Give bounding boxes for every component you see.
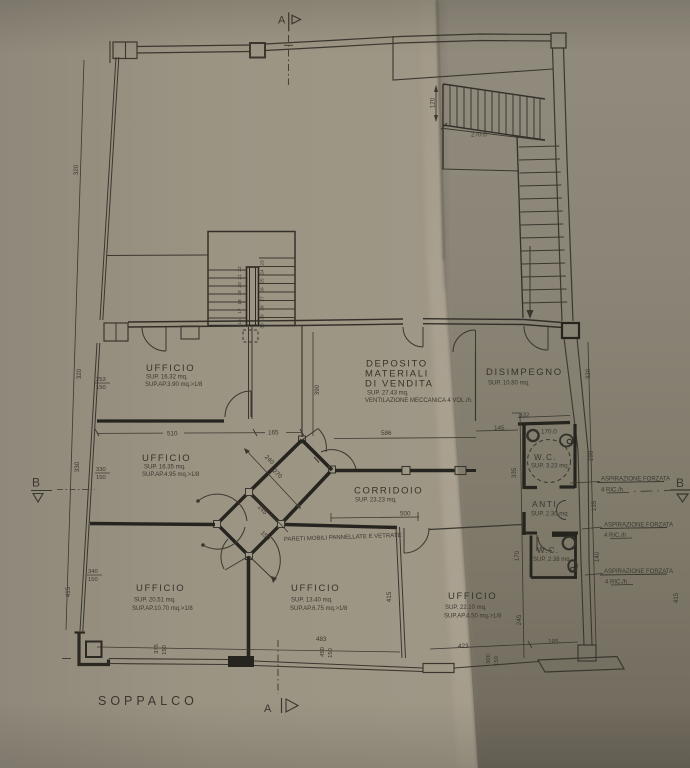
svg-text:120: 120 <box>430 97 437 108</box>
svg-text:270.0: 270.0 <box>471 132 487 139</box>
svg-text:SUP. 3.23 mq.: SUP. 3.23 mq. <box>531 464 570 470</box>
svg-text:145: 145 <box>494 425 505 432</box>
svg-text:320: 320 <box>76 368 83 379</box>
svg-text:SUP. 16.35 mq.: SUP. 16.35 mq. <box>144 465 186 471</box>
svg-text:330: 330 <box>96 467 106 473</box>
svg-text:UFFICIO: UFFICIO <box>142 453 191 464</box>
svg-text:20: 20 <box>237 282 243 288</box>
svg-text:340: 340 <box>88 569 98 575</box>
svg-text:SOPPALCO: SOPPALCO <box>98 694 198 708</box>
svg-text:415: 415 <box>65 586 72 597</box>
svg-text:300: 300 <box>486 654 492 664</box>
svg-text:150: 150 <box>494 656 500 666</box>
svg-text:423: 423 <box>458 643 469 650</box>
svg-text:SUP.AP.10.70 mq.>1/8: SUP.AP.10.70 mq.>1/8 <box>132 606 193 612</box>
svg-text:150: 150 <box>162 645 168 655</box>
svg-text:253: 253 <box>96 377 106 383</box>
svg-text:SUP. 2.38 mq: SUP. 2.38 mq <box>533 557 570 563</box>
svg-text:135: 135 <box>591 500 598 511</box>
svg-text:170.0: 170.0 <box>541 429 557 436</box>
svg-text:150: 150 <box>88 577 98 583</box>
svg-text:A: A <box>264 703 272 715</box>
svg-text:335: 335 <box>511 467 518 478</box>
svg-text:24: 24 <box>260 269 266 275</box>
svg-text:320: 320 <box>585 368 592 379</box>
svg-text:18: 18 <box>237 299 243 305</box>
svg-text:375: 375 <box>154 644 160 654</box>
svg-text:A: A <box>278 15 286 27</box>
svg-text:500: 500 <box>400 511 411 518</box>
svg-text:140: 140 <box>594 551 601 562</box>
svg-text:245: 245 <box>516 614 523 625</box>
svg-text:27: 27 <box>260 296 266 302</box>
svg-text:UFFICIO: UFFICIO <box>136 583 185 594</box>
svg-text:ANTI: ANTI <box>532 499 557 509</box>
svg-text:170: 170 <box>514 550 521 561</box>
svg-text:320: 320 <box>73 164 80 175</box>
svg-text:415: 415 <box>386 591 393 602</box>
svg-text:SUP. 2.30 mq: SUP. 2.30 mq <box>531 512 568 518</box>
svg-text:SUP.AP.3.90 mq.>1/8: SUP.AP.3.90 mq.>1/8 <box>145 382 203 388</box>
svg-text:DI VENDITA: DI VENDITA <box>365 379 434 390</box>
svg-text:22: 22 <box>237 266 243 272</box>
svg-text:B: B <box>32 476 40 490</box>
svg-text:25: 25 <box>260 278 266 284</box>
svg-text:483: 483 <box>316 636 327 643</box>
svg-text:W.C.: W.C. <box>537 546 559 555</box>
svg-text:28: 28 <box>260 305 266 311</box>
svg-text:185: 185 <box>548 639 559 646</box>
svg-text:150: 150 <box>96 385 106 391</box>
svg-text:165: 165 <box>268 430 279 437</box>
svg-text:21: 21 <box>237 274 243 280</box>
svg-text:150: 150 <box>328 648 334 658</box>
svg-text:586: 586 <box>381 430 392 437</box>
svg-text:SUP. 23.23 mq.: SUP. 23.23 mq. <box>355 498 397 504</box>
svg-text:UFFICIO: UFFICIO <box>146 363 195 374</box>
svg-text:330: 330 <box>74 461 81 472</box>
svg-text:UFFICIO: UFFICIO <box>291 583 340 594</box>
svg-text:150: 150 <box>96 475 106 481</box>
svg-text:SUP.AP.6.75 mq.>1/8: SUP.AP.6.75 mq.>1/8 <box>290 606 348 612</box>
svg-text:450: 450 <box>320 647 326 657</box>
svg-text:16: 16 <box>237 319 243 325</box>
svg-text:W.C.: W.C. <box>534 453 557 462</box>
svg-text:19: 19 <box>237 290 243 296</box>
svg-text:SUP. 22.10 mq.: SUP. 22.10 mq. <box>445 605 487 611</box>
svg-text:SUP. 16.32 mq.: SUP. 16.32 mq. <box>146 375 188 381</box>
svg-text:UFFICIO: UFFICIO <box>448 591 497 602</box>
svg-text:23: 23 <box>260 260 266 266</box>
svg-text:B: B <box>676 476 684 490</box>
svg-text:SUP. 20.51 mq.: SUP. 20.51 mq. <box>134 598 176 604</box>
svg-text:SUP.AP.4.50 mq.>1/8: SUP.AP.4.50 mq.>1/8 <box>444 614 502 620</box>
svg-text:415: 415 <box>673 592 680 603</box>
svg-text:190: 190 <box>588 450 595 461</box>
svg-text:SUP. 13.40 mq.: SUP. 13.40 mq. <box>291 598 333 604</box>
svg-text:DISIMPEGNO: DISIMPEGNO <box>486 367 563 378</box>
svg-text:CORRIDOIO: CORRIDOIO <box>354 486 423 497</box>
svg-text:SUP. 27.43 mq.: SUP. 27.43 mq. <box>367 391 409 397</box>
svg-text:30: 30 <box>260 323 266 329</box>
svg-text:SUP.AP.4.95 mq.>1/8: SUP.AP.4.95 mq.>1/8 <box>142 472 200 478</box>
svg-text:17: 17 <box>237 308 243 314</box>
svg-text:VENTILAZIONE MECCANICA 4 VOL./: VENTILAZIONE MECCANICA 4 VOL./h. <box>365 398 473 404</box>
svg-text:26: 26 <box>260 287 266 293</box>
svg-text:SUP. 10.80 mq.: SUP. 10.80 mq. <box>488 381 530 387</box>
svg-text:510: 510 <box>167 431 178 438</box>
svg-text:390: 390 <box>314 384 321 395</box>
svg-text:332: 332 <box>519 412 530 419</box>
svg-text:29: 29 <box>260 314 266 320</box>
